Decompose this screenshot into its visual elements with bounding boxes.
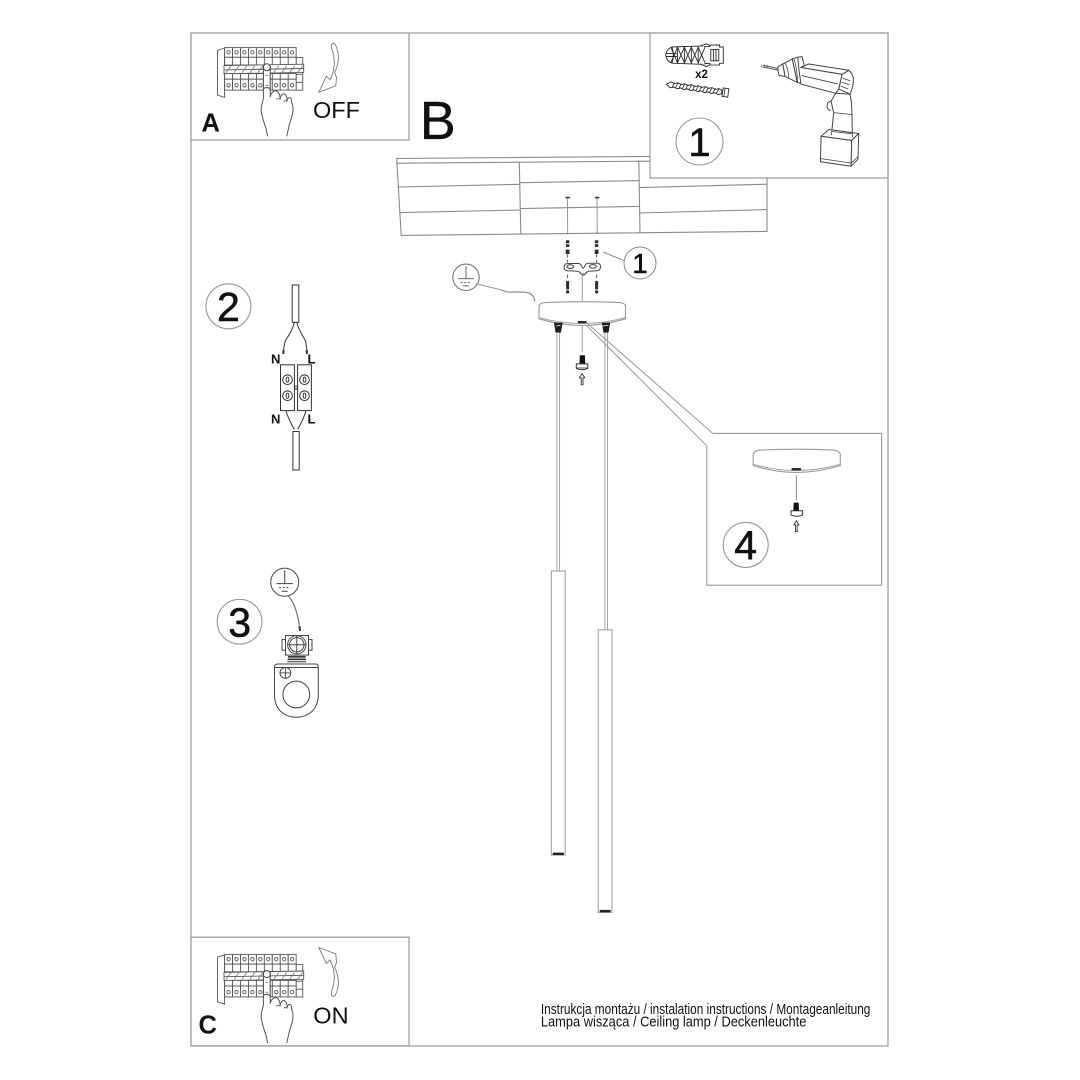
svg-text:N: N	[271, 352, 280, 367]
svg-text:4: 4	[734, 523, 757, 569]
svg-text:C: C	[199, 1012, 217, 1040]
svg-text:ON: ON	[313, 1002, 348, 1028]
svg-text:x2: x2	[695, 69, 708, 81]
svg-text:L: L	[308, 352, 316, 367]
svg-text:1: 1	[688, 121, 710, 165]
svg-text:N: N	[271, 411, 280, 426]
svg-text:OFF: OFF	[313, 97, 360, 123]
svg-text:1: 1	[632, 248, 647, 279]
svg-text:A: A	[202, 110, 220, 138]
svg-text:L: L	[308, 411, 316, 426]
svg-text:Lampa wisząca / Ceiling lamp /: Lampa wisząca / Ceiling lamp / Deckenleu…	[541, 1014, 807, 1031]
svg-text:3: 3	[228, 600, 251, 646]
svg-text:B: B	[420, 91, 456, 151]
svg-text:2: 2	[217, 284, 240, 330]
